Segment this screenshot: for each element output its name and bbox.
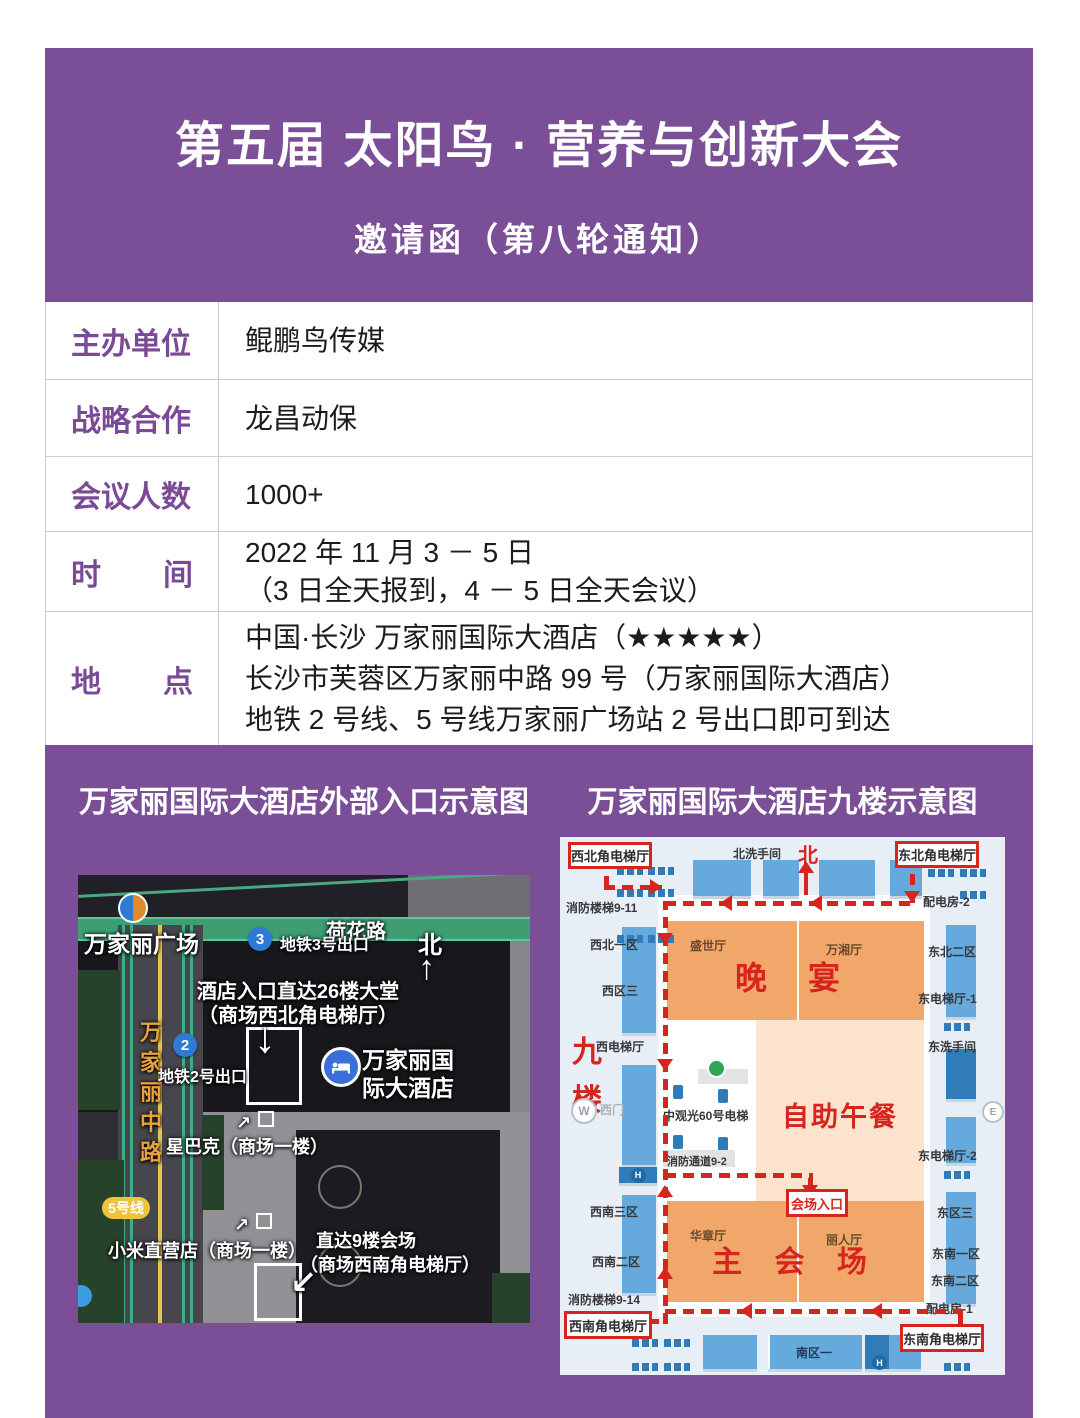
- floorplan-map-title: 万家丽国际大酒店九楼示意图: [560, 777, 1005, 821]
- north-restroom-label: 北洗手间: [733, 845, 781, 862]
- banquet-label: 晚 宴: [667, 953, 924, 999]
- sw-zone-2-label: 西南二区: [592, 1253, 640, 1270]
- east-zone-3-label: 东区三: [937, 1204, 973, 1221]
- east-elevator-2-label: 东电梯厅-2: [918, 1147, 977, 1164]
- roundabout-icon: [118, 893, 148, 923]
- row-value-line: 地铁 2 号线、5 号线万家丽广场站 2 号出口即可到达: [245, 699, 1032, 740]
- starbucks-marker: [258, 1111, 274, 1127]
- satellite-block: [510, 937, 530, 1112]
- helipad-icon: [318, 1165, 362, 1209]
- road-left-char: 万: [140, 1015, 162, 1047]
- se-elevator-box: 东南角电梯厅: [900, 1324, 984, 1352]
- road-left-char: 中: [140, 1105, 162, 1137]
- east-gate-icon: E: [982, 1101, 1004, 1123]
- page-title: 第五届 太阳鸟 · 营养与创新大会: [45, 48, 1033, 177]
- west-zone-3-label: 西区三: [602, 982, 638, 999]
- row-value: 1000+: [245, 474, 1032, 515]
- page-subtitle: 邀请函（第八轮通知）: [45, 177, 1033, 261]
- nw-elevator-box: 西北角电梯厅: [568, 842, 652, 869]
- power-room-2-label: 配电房-2: [923, 893, 970, 910]
- south-zone-1-label: 南区一: [796, 1344, 832, 1361]
- ne-zone-2-label: 东北二区: [928, 943, 976, 960]
- room-block: [693, 860, 751, 896]
- stair-block: H: [619, 1167, 657, 1183]
- starbucks-label: 星巴克（商场一楼）: [166, 1133, 328, 1159]
- row-value: 龙昌动保: [245, 398, 1032, 439]
- h-icon: H: [631, 1168, 646, 1183]
- exterior-map-title: 万家丽国际大酒店外部入口示意图: [78, 777, 530, 821]
- sw-elevator-box: 西南角电梯厅: [564, 1311, 652, 1339]
- metro-exit-2-label: 地铁2号出口: [158, 1063, 247, 1087]
- room-block-south: [703, 1335, 757, 1369]
- fire-stairs-914-label: 消防楼梯9-14: [568, 1291, 640, 1308]
- west-elevator-label: 西电梯厅: [596, 1038, 644, 1055]
- se-zone-1-label: 东南一区: [932, 1245, 980, 1262]
- table-row-partner: 战略合作 龙昌动保: [46, 380, 1032, 457]
- row-label: 主办单位: [46, 302, 219, 379]
- row-value-line: 中国·长沙 万家丽国际大酒店（★★★★★）: [245, 617, 1032, 658]
- arrow-ne-icon: ↗: [236, 1113, 251, 1134]
- table-row-time: 时间 2022 年 11 月 3 － 5 日 （3 日全天报到，4 － 5 日全…: [46, 532, 1032, 612]
- floorplan-map: H: [560, 837, 1005, 1375]
- road-left-char: 路: [140, 1135, 162, 1167]
- row-label: 地点: [46, 612, 219, 745]
- room-block-east: [946, 1049, 976, 1099]
- down-arrow-icon: ↓: [254, 1013, 276, 1063]
- metro-exit-3-icon: 3: [248, 927, 272, 951]
- metro-line5-badge: 5号线: [102, 1197, 150, 1219]
- metro-exit-2-icon: 2: [173, 1033, 197, 1057]
- buffet-lunch-label: 自助午餐: [756, 1095, 924, 1134]
- fire-stairs-911-label: 消防楼梯9-11: [566, 899, 637, 916]
- room-block-west: [622, 1065, 656, 1165]
- main-venue-label: 主 会 场: [667, 1237, 924, 1281]
- maps-section: 万家丽国际大酒店外部入口示意图 万家丽国际大酒店九楼示意图: [45, 745, 1033, 1418]
- row-label: 会议人数: [46, 457, 219, 531]
- hotel-pin-icon: [321, 1047, 361, 1087]
- row-label: 时间: [46, 532, 219, 611]
- table-row-organizer: 主办单位 鲲鹏鸟传媒: [46, 302, 1032, 380]
- east-elevator-1-label: 东电梯厅-1: [918, 990, 977, 1007]
- invitation-poster: 第五届 太阳鸟 · 营养与创新大会 邀请函（第八轮通知） 主办单位 鲲鹏鸟传媒 …: [0, 0, 1080, 1418]
- nw-zone-1-label: 西北一区: [590, 936, 638, 953]
- plaza-label: 万家丽广场: [84, 925, 199, 959]
- sightseeing-elevator-label: 中观光60号电梯: [663, 1107, 748, 1124]
- ne-elevator-box: 东北角电梯厅: [895, 841, 979, 868]
- room-block: [819, 860, 875, 896]
- fire-passage-92-label: 消防通道9-2: [667, 1153, 727, 1169]
- table-row-location: 地点 中国·长沙 万家丽国际大酒店（★★★★★） 长沙市芙蓉区万家丽中路 99 …: [46, 612, 1032, 745]
- xiaomi-marker: [256, 1213, 272, 1229]
- se-zone-2-label: 东南二区: [931, 1272, 979, 1289]
- exterior-map: 万家丽广场 荷花路 万 家 丽 中 路 3 地铁3号出口 2 地铁2号出口 北 …: [78, 875, 530, 1323]
- entrance-9f-label-line2: （商场西南角电梯厅）: [300, 1251, 480, 1277]
- west-gate-label: 西门: [600, 1101, 624, 1118]
- metro-exit-3-label: 地铁3号出口: [280, 931, 369, 955]
- room-block: [763, 860, 799, 896]
- entrance-9f-label-line1: 直达9楼会场: [316, 1227, 416, 1253]
- h-icon: H: [872, 1355, 887, 1370]
- table-row-attendees: 会议人数 1000+: [46, 457, 1032, 532]
- entrance-26f-label-line2: （商场西北角电梯厅）: [173, 999, 423, 1028]
- north-arrow-icon: [804, 871, 808, 895]
- hall-shengshi-label: 盛世厅: [690, 937, 726, 954]
- info-table: 主办单位 鲲鹏鸟传媒 战略合作 龙昌动保 会议人数 1000+ 时间 2022 …: [45, 302, 1033, 745]
- header-banner: 第五届 太阳鸟 · 营养与创新大会 邀请函（第八轮通知）: [45, 48, 1033, 302]
- row-value-line: 2022 年 11 月 3 － 5 日: [245, 534, 1032, 572]
- row-label: 战略合作: [46, 380, 219, 456]
- row-value: 鲲鹏鸟传媒: [245, 320, 1032, 361]
- arrow-ne-icon: ↗: [234, 1215, 249, 1236]
- hotel-name-line2: 际大酒店: [362, 1069, 454, 1103]
- satellite-block: [408, 875, 530, 917]
- row-value-line: 长沙市芙蓉区万家丽中路 99 号（万家丽国际大酒店）: [245, 658, 1032, 699]
- venue-entrance-box: 会场入口: [786, 1189, 848, 1217]
- sw-zone-3-label: 西南三区: [590, 1203, 638, 1220]
- east-restroom-label: 东洗手间: [928, 1038, 976, 1055]
- arrow-sw-icon: ↙: [290, 1263, 317, 1301]
- row-value-line: （3 日全天报到，4 － 5 日全天会议）: [245, 572, 1032, 610]
- xiaomi-label: 小米直营店（商场一楼）: [108, 1237, 306, 1263]
- plant-icon: [707, 1059, 726, 1078]
- west-gate-icon: W: [571, 1098, 597, 1124]
